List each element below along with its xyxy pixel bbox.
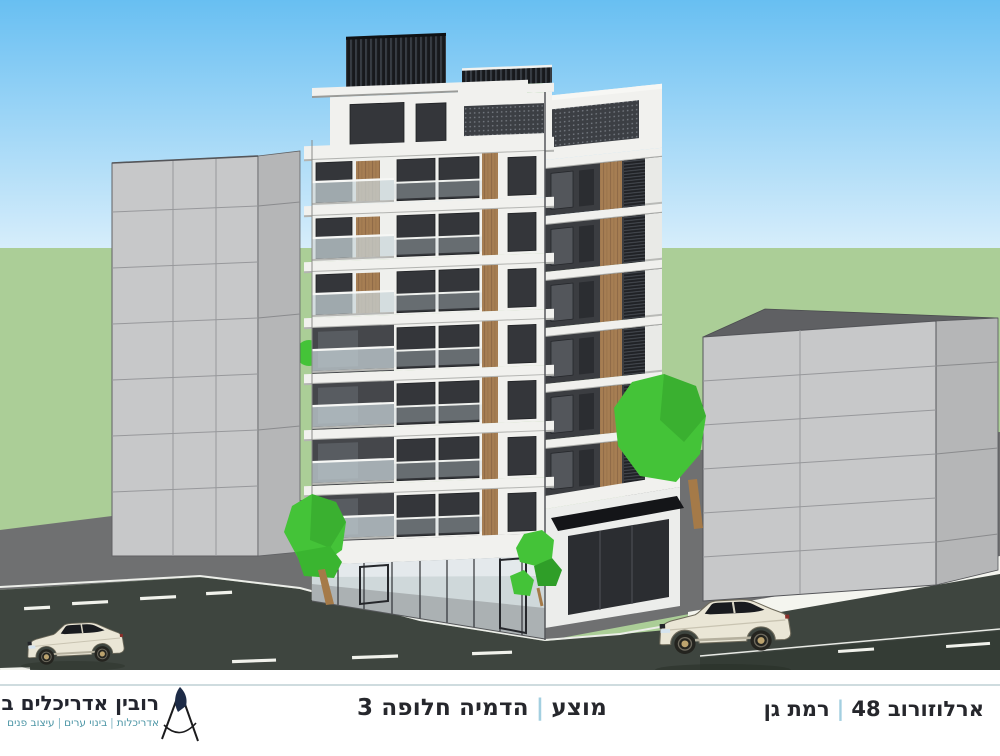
compass-icon [160, 685, 200, 743]
presentation-slide: מוצע|הדמיה חלופה 3 ארלוזורוב 48|רמת גן ר… [0, 0, 1000, 756]
city-label: רמת גן [764, 697, 830, 721]
right-neighbor-building [703, 309, 998, 601]
project-address: ארלוזורוב 48|רמת גן [764, 697, 984, 721]
entrance-annex [545, 474, 684, 628]
left-neighbor-building [112, 151, 300, 556]
car-shadow [21, 661, 125, 671]
firm-name: רובין אדריכלים בע״מ [0, 693, 159, 714]
firm-tagline: אדריכלות|בינוי ערים|עיצוב פנים [0, 717, 159, 729]
tagline-architecture: אדריכלות [117, 717, 159, 729]
address-separator: | [830, 697, 852, 721]
title-separator: | [529, 695, 552, 721]
status-label: מוצע [551, 695, 607, 721]
street-label: ארלוזורוב 48 [851, 697, 984, 721]
caption-label: הדמיה חלופה 3 [357, 695, 529, 721]
architectural-rendering [0, 0, 1000, 676]
caption-bar: מוצע|הדמיה חלופה 3 ארלוזורוב 48|רמת גן ר… [0, 676, 1000, 756]
firm-logo-block: רובין אדריכלים בע״מ אדריכלות|בינוי ערים|… [8, 685, 200, 743]
tagline-interior: עיצוב פנים [7, 717, 55, 729]
tagline-separator: | [55, 717, 65, 729]
tagline-separator: | [107, 717, 117, 729]
proposed-tower [304, 29, 684, 640]
tagline-urban: בינוי ערים [64, 717, 107, 729]
